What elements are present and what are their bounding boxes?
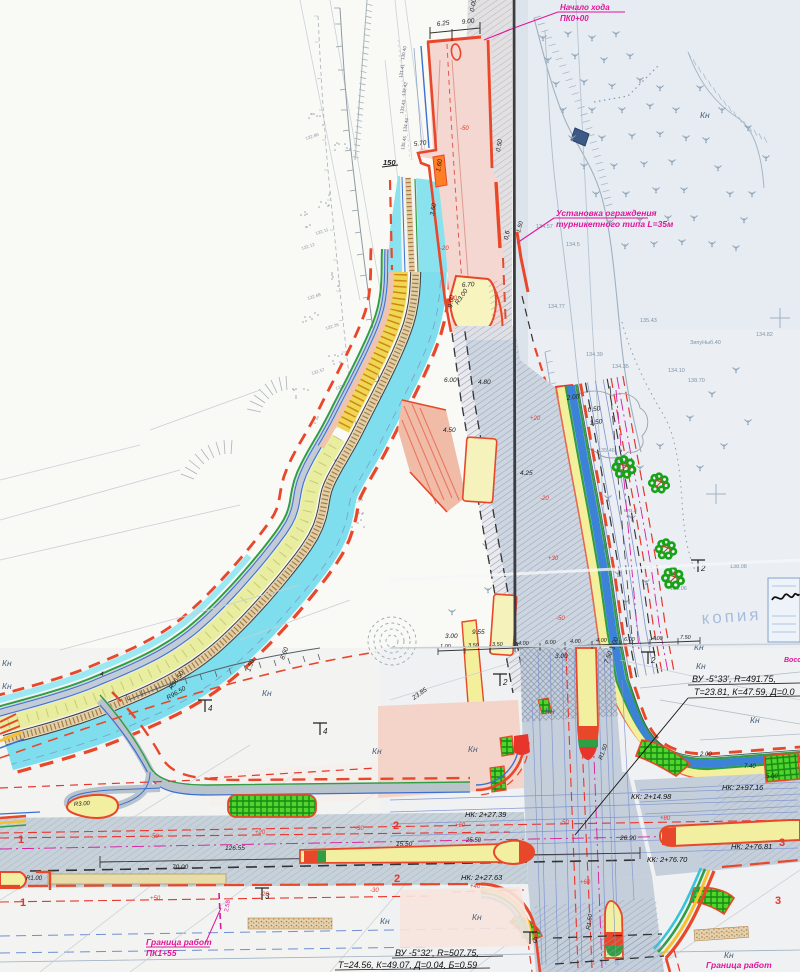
svg-text:138.08: 138.08 xyxy=(730,564,747,570)
svg-text:ПК1+55: ПК1+55 xyxy=(146,948,177,958)
svg-text:Начало хода: Начало хода xyxy=(560,3,610,12)
svg-text:Кн: Кн xyxy=(694,642,704,652)
svg-text:134.5: 134.5 xyxy=(566,242,580,248)
svg-text:-30: -30 xyxy=(370,888,379,894)
svg-text:-50: -50 xyxy=(556,616,565,622)
svg-text:4.00: 4.00 xyxy=(596,638,608,644)
svg-text:Кн: Кн xyxy=(750,715,760,725)
svg-text:4: 4 xyxy=(208,704,213,713)
svg-text:134.39: 134.39 xyxy=(586,352,603,358)
svg-text:4: 4 xyxy=(323,727,328,736)
svg-text:4.50: 4.50 xyxy=(443,427,456,434)
svg-text:Кн: Кн xyxy=(472,912,482,922)
svg-text:4.25: 4.25 xyxy=(520,470,533,477)
svg-text:-50: -50 xyxy=(150,834,159,840)
svg-text:7.40: 7.40 xyxy=(744,764,756,770)
svg-text:+50: +50 xyxy=(150,896,161,902)
svg-text:3.00: 3.00 xyxy=(445,633,458,640)
svg-text:Установка ограждения: Установка ограждения xyxy=(556,208,657,218)
svg-text:5.70: 5.70 xyxy=(413,140,427,148)
svg-text:4.00: 4.00 xyxy=(570,639,582,645)
svg-text:Граница работ: Граница работ xyxy=(146,937,212,947)
svg-text:4: 4 xyxy=(100,671,104,678)
svg-text:Кн: Кн xyxy=(696,661,706,671)
svg-text:+60: +60 xyxy=(580,880,591,886)
svg-text:6.00: 6.00 xyxy=(545,640,557,646)
svg-text:3: 3 xyxy=(775,895,781,907)
svg-text:9.55: 9.55 xyxy=(472,629,485,636)
svg-text:9.00: 9.00 xyxy=(461,18,475,26)
svg-text:ВУ -5°33', R=491.75,: ВУ -5°33', R=491.75, xyxy=(692,674,776,684)
svg-text:2: 2 xyxy=(502,678,508,687)
svg-text:4.00: 4.00 xyxy=(652,636,664,642)
svg-text:R3.00: R3.00 xyxy=(74,801,91,808)
svg-text:КК: 2+76.70: КК: 2+76.70 xyxy=(647,855,688,864)
svg-text:Граница работ: Граница работ xyxy=(706,960,772,970)
svg-text:НК: 2+27.63: НК: 2+27.63 xyxy=(461,873,503,882)
svg-text:+80: +80 xyxy=(660,816,671,822)
svg-text:Кн: Кн xyxy=(700,110,710,120)
svg-text:1: 1 xyxy=(18,834,24,846)
svg-text:7.50: 7.50 xyxy=(680,635,692,641)
svg-text:3: 3 xyxy=(779,837,785,849)
svg-text:138.70: 138.70 xyxy=(688,378,705,384)
svg-text:Кн: Кн xyxy=(468,744,478,754)
svg-text:+60: +60 xyxy=(455,823,466,829)
svg-text:134.82: 134.82 xyxy=(756,332,773,338)
svg-text:5.00: 5.00 xyxy=(766,774,778,780)
svg-text:134.77: 134.77 xyxy=(548,304,565,310)
svg-text:НК: 2+27.39: НК: 2+27.39 xyxy=(465,810,507,819)
svg-text:3.50: 3.50 xyxy=(468,643,480,649)
svg-text:26.90: 26.90 xyxy=(619,835,637,842)
svg-text:НК: 2+76.81: НК: 2+76.81 xyxy=(731,842,772,851)
svg-text:2: 2 xyxy=(393,820,399,832)
svg-text:+30: +30 xyxy=(548,556,559,562)
svg-text:-30: -30 xyxy=(448,296,457,302)
svg-text:турникетного типа L=35м: турникетного типа L=35м xyxy=(556,219,674,229)
svg-text:25.50: 25.50 xyxy=(465,838,482,844)
svg-text:2: 2 xyxy=(650,656,656,665)
svg-text:НК: 2+97.16: НК: 2+97.16 xyxy=(722,783,764,792)
svg-text:1: 1 xyxy=(20,897,26,909)
svg-text:6.00: 6.00 xyxy=(624,637,636,643)
svg-text:ПК0+00: ПК0+00 xyxy=(560,14,589,23)
svg-text:R1.00: R1.00 xyxy=(26,876,43,882)
svg-text:КК: 2+14.98: КК: 2+14.98 xyxy=(631,792,672,801)
svg-text:134.35: 134.35 xyxy=(612,364,629,370)
svg-text:Кн: Кн xyxy=(262,688,272,698)
svg-text:-50: -50 xyxy=(460,126,469,132)
svg-text:-20: -20 xyxy=(540,496,549,502)
svg-text:Кн: Кн xyxy=(2,658,12,668)
svg-text:6.25: 6.25 xyxy=(436,20,450,28)
svg-text:2: 2 xyxy=(394,873,400,885)
svg-text:-20: -20 xyxy=(260,892,269,898)
svg-text:126.55: 126.55 xyxy=(225,845,245,852)
svg-text:ЗипуНыб.40: ЗипуНыб.40 xyxy=(690,340,721,346)
svg-text:+20: +20 xyxy=(530,416,541,422)
svg-text:3.00: 3.00 xyxy=(555,653,568,660)
svg-text:6.00: 6.00 xyxy=(444,377,457,384)
svg-text:-20: -20 xyxy=(440,246,449,252)
svg-text:Кн: Кн xyxy=(2,681,12,691)
svg-text:Кн: Кн xyxy=(545,706,555,716)
svg-text:Восс: Восс xyxy=(784,657,800,664)
svg-text:+40: +40 xyxy=(470,884,481,890)
svg-text:6.70: 6.70 xyxy=(462,281,475,289)
svg-text:Кн: Кн xyxy=(372,746,382,756)
svg-text:135.43: 135.43 xyxy=(640,318,657,324)
svg-text:Кн: Кн xyxy=(380,916,390,926)
svg-text:3: 3 xyxy=(533,936,538,945)
svg-text:134.10: 134.10 xyxy=(668,368,685,374)
svg-text:-30: -30 xyxy=(355,826,364,832)
svg-text:-50: -50 xyxy=(560,820,569,826)
svg-text:2.00: 2.00 xyxy=(699,752,712,758)
svg-text:Кн: Кн xyxy=(724,950,734,960)
svg-text:15.50: 15.50 xyxy=(396,841,413,848)
svg-text:+20: +20 xyxy=(255,830,266,836)
svg-text:4.80: 4.80 xyxy=(478,379,491,386)
svg-text:Т=23.81, К=47.59, Д=0.0: Т=23.81, К=47.59, Д=0.0 xyxy=(694,687,794,697)
svg-text:70.00: 70.00 xyxy=(172,864,189,871)
